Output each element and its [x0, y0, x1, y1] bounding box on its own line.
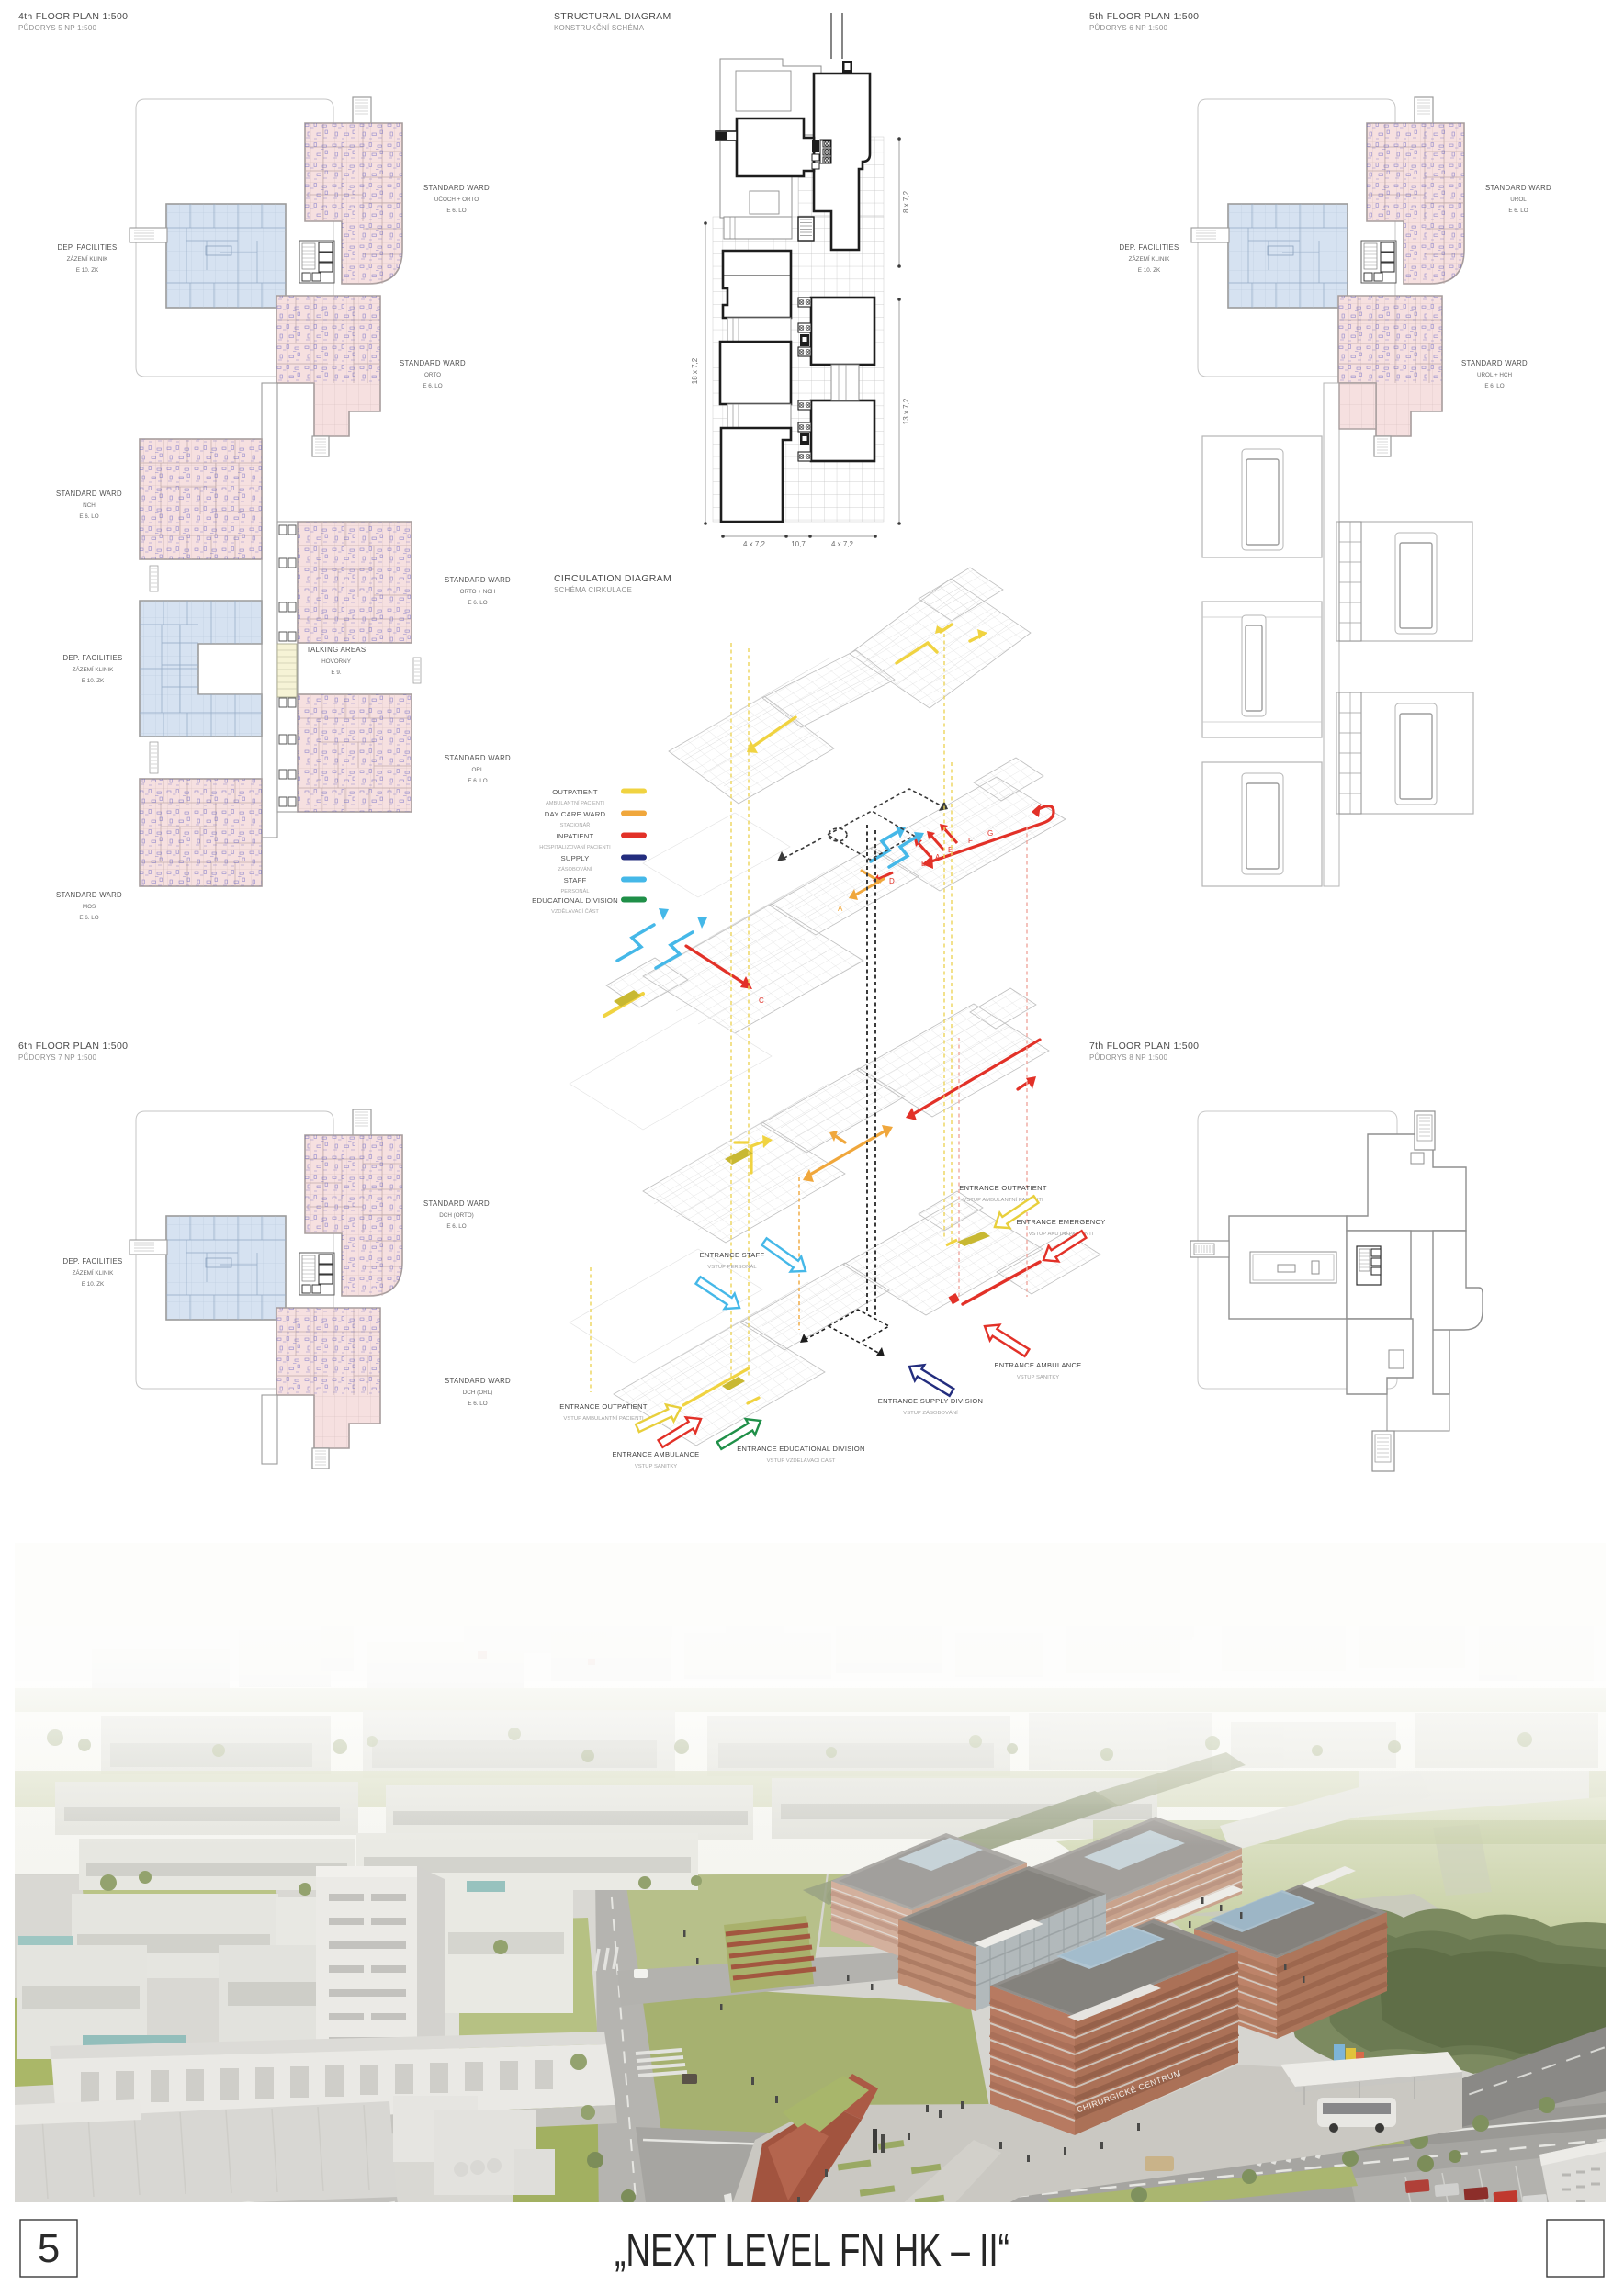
svg-text:E 6. LO: E 6. LO [79, 513, 98, 520]
svg-text:18 x 7,2: 18 x 7,2 [691, 357, 699, 384]
svg-text:4th FLOOR PLAN 1:500: 4th FLOOR PLAN 1:500 [18, 11, 128, 22]
svg-text:ENTRANCE EDUCATIONAL DIVISION: ENTRANCE EDUCATIONAL DIVISION [737, 1445, 865, 1453]
svg-text:ENTRANCE AMBULANCE: ENTRANCE AMBULANCE [612, 1450, 699, 1458]
svg-text:STANDARD WARD: STANDARD WARD [56, 891, 122, 899]
svg-text:STANDARD WARD: STANDARD WARD [1461, 359, 1528, 367]
svg-text:ENTRANCE AMBULANCE: ENTRANCE AMBULANCE [994, 1361, 1081, 1369]
svg-text:NCH: NCH [83, 502, 96, 509]
svg-text:D: D [889, 877, 895, 885]
svg-text:STANDARD WARD: STANDARD WARD [423, 1199, 490, 1208]
svg-text:G: G [987, 829, 993, 838]
svg-text:ZÁSOBOVÁNÍ: ZÁSOBOVÁNÍ [558, 866, 592, 872]
svg-text:VSTUP VZDĚLÁVACÍ ČÁST: VSTUP VZDĚLÁVACÍ ČÁST [767, 1457, 836, 1464]
svg-text:8 x 7,2: 8 x 7,2 [902, 190, 910, 213]
svg-text:PŮDORYS 5 NP 1:500: PŮDORYS 5 NP 1:500 [18, 24, 96, 32]
svg-text:E 10. ZK: E 10. ZK [76, 267, 99, 274]
svg-text:ENTRANCE OUTPATIENT: ENTRANCE OUTPATIENT [559, 1402, 648, 1411]
svg-text:„NEXT LEVEL FN HK – II“: „NEXT LEVEL FN HK – II“ [615, 2224, 1009, 2276]
svg-text:DCH (ORL): DCH (ORL) [463, 1390, 493, 1396]
svg-text:KONSTRUKČNÍ SCHÉMA: KONSTRUKČNÍ SCHÉMA [554, 24, 645, 32]
svg-text:ORTO + NCH: ORTO + NCH [460, 589, 496, 595]
svg-text:E 6. LO: E 6. LO [468, 1401, 487, 1407]
svg-text:ORTO: ORTO [424, 372, 441, 378]
svg-text:STANDARD WARD: STANDARD WARD [400, 359, 466, 367]
svg-text:ORL: ORL [472, 767, 484, 773]
svg-text:E 6. LO: E 6. LO [79, 915, 98, 921]
svg-text:VSTUP PERSONÁL: VSTUP PERSONÁL [707, 1264, 757, 1270]
svg-text:UROL + HCH: UROL + HCH [1477, 372, 1513, 378]
svg-text:SUPPLY: SUPPLY [561, 854, 590, 862]
svg-text:7th FLOOR PLAN 1:500: 7th FLOOR PLAN 1:500 [1089, 1041, 1199, 1052]
svg-text:PŮDORYS 6 NP 1:500: PŮDORYS 6 NP 1:500 [1089, 24, 1167, 32]
svg-text:DCH (ORTO): DCH (ORTO) [439, 1212, 474, 1219]
svg-text:PŮDORYS 7 NP 1:500: PŮDORYS 7 NP 1:500 [18, 1053, 96, 1062]
svg-text:E 10. ZK: E 10. ZK [1138, 267, 1161, 274]
svg-text:ENTRANCE STAFF: ENTRANCE STAFF [700, 1251, 765, 1259]
svg-text:STAFF: STAFF [564, 876, 587, 884]
svg-text:DAY CARE WARD: DAY CARE WARD [545, 810, 606, 818]
svg-text:A: A [935, 853, 941, 861]
svg-text:ZÁZEMÍ KLINIK: ZÁZEMÍ KLINIK [67, 254, 109, 263]
svg-text:MOS: MOS [83, 904, 96, 910]
svg-text:E 6. LO: E 6. LO [446, 1223, 466, 1230]
svg-text:DEP. FACILITIES: DEP. FACILITIES [62, 654, 122, 662]
svg-text:UROL: UROL [1510, 197, 1527, 203]
svg-text:B: B [921, 860, 926, 868]
svg-text:CIRCULATION DIAGRAM: CIRCULATION DIAGRAM [554, 573, 671, 584]
svg-text:AMBULANTNÍ PACIENTI: AMBULANTNÍ PACIENTI [546, 800, 604, 806]
svg-text:13 x 7,2: 13 x 7,2 [902, 398, 910, 424]
svg-text:DEP. FACILITIES: DEP. FACILITIES [57, 243, 117, 252]
svg-text:SCHÉMA CIRKULACE: SCHÉMA CIRKULACE [554, 586, 632, 594]
svg-text:A: A [838, 905, 843, 913]
svg-text:ENTRANCE EMERGENCY: ENTRANCE EMERGENCY [1016, 1218, 1105, 1226]
svg-text:10,7: 10,7 [791, 540, 806, 548]
svg-text:C: C [759, 996, 764, 1005]
svg-text:STANDARD WARD: STANDARD WARD [445, 1377, 511, 1385]
svg-text:STANDARD WARD: STANDARD WARD [445, 754, 511, 762]
svg-text:DEP. FACILITIES: DEP. FACILITIES [1119, 243, 1179, 252]
svg-text:6th FLOOR PLAN 1:500: 6th FLOOR PLAN 1:500 [18, 1041, 128, 1052]
svg-text:E 6. LO: E 6. LO [468, 600, 487, 606]
svg-text:HOSPITALIZOVANÍ PACIENTI: HOSPITALIZOVANÍ PACIENTI [539, 844, 611, 850]
svg-text:STRUCTURAL DIAGRAM: STRUCTURAL DIAGRAM [554, 11, 671, 22]
svg-text:F: F [968, 837, 973, 845]
svg-text:4 x 7,2: 4 x 7,2 [743, 540, 766, 548]
svg-text:UČOCH + ORTO: UČOCH + ORTO [434, 195, 479, 203]
svg-text:5th FLOOR PLAN 1:500: 5th FLOOR PLAN 1:500 [1089, 11, 1199, 22]
svg-text:E 10. ZK: E 10. ZK [82, 678, 105, 684]
svg-text:STANDARD WARD: STANDARD WARD [1485, 184, 1551, 192]
svg-text:DEP. FACILITIES: DEP. FACILITIES [62, 1257, 122, 1266]
svg-text:E 9.: E 9. [331, 670, 341, 676]
svg-text:E 6. LO: E 6. LO [1508, 208, 1528, 214]
svg-text:TALKING AREAS: TALKING AREAS [307, 646, 367, 654]
svg-text:STANDARD WARD: STANDARD WARD [423, 184, 490, 192]
svg-text:VSTUP SANITKY: VSTUP SANITKY [635, 1464, 677, 1469]
svg-text:ENTRANCE OUTPATIENT: ENTRANCE OUTPATIENT [959, 1184, 1047, 1192]
svg-text:STANDARD WARD: STANDARD WARD [56, 490, 122, 498]
svg-text:PŮDORYS 8 NP 1:500: PŮDORYS 8 NP 1:500 [1089, 1053, 1167, 1062]
svg-text:STANDARD WARD: STANDARD WARD [445, 576, 511, 584]
svg-text:E 6. LO: E 6. LO [446, 208, 466, 214]
svg-text:4 x 7,2: 4 x 7,2 [831, 540, 854, 548]
svg-text:E 6. LO: E 6. LO [1484, 383, 1504, 389]
svg-text:INPATIENT: INPATIENT [557, 832, 594, 840]
svg-text:E 6. LO: E 6. LO [423, 383, 442, 389]
svg-text:E 10. ZK: E 10. ZK [82, 1281, 105, 1288]
svg-text:ZÁZEMÍ KLINIK: ZÁZEMÍ KLINIK [1129, 254, 1171, 263]
svg-text:EDUCATIONAL DIVISION: EDUCATIONAL DIVISION [532, 896, 618, 905]
svg-text:ENTRANCE SUPPLY DIVISION: ENTRANCE SUPPLY DIVISION [878, 1397, 983, 1405]
svg-text:VSTUP ZÁSOBOVÁNÍ: VSTUP ZÁSOBOVÁNÍ [903, 1410, 958, 1416]
svg-text:PERSONÁL: PERSONÁL [561, 888, 590, 895]
svg-text:ZÁZEMÍ KLINIK: ZÁZEMÍ KLINIK [73, 1268, 115, 1277]
svg-text:ZÁZEMÍ KLINIK: ZÁZEMÍ KLINIK [73, 665, 115, 673]
svg-text:5: 5 [38, 2226, 60, 2271]
svg-text:STACIONÁŘ: STACIONÁŘ [560, 821, 591, 828]
svg-text:VSTUP SANITKY: VSTUP SANITKY [1017, 1375, 1059, 1380]
svg-text:E 6. LO: E 6. LO [468, 778, 487, 784]
svg-text:HOVORNY: HOVORNY [321, 658, 352, 665]
svg-text:VZDĚLÁVACÍ ČÁST: VZDĚLÁVACÍ ČÁST [551, 907, 599, 915]
svg-text:OUTPATIENT: OUTPATIENT [552, 788, 598, 796]
svg-text:VSTUP AMBULANTNÍ PACIENTI: VSTUP AMBULANTNÍ PACIENTI [563, 1415, 644, 1422]
